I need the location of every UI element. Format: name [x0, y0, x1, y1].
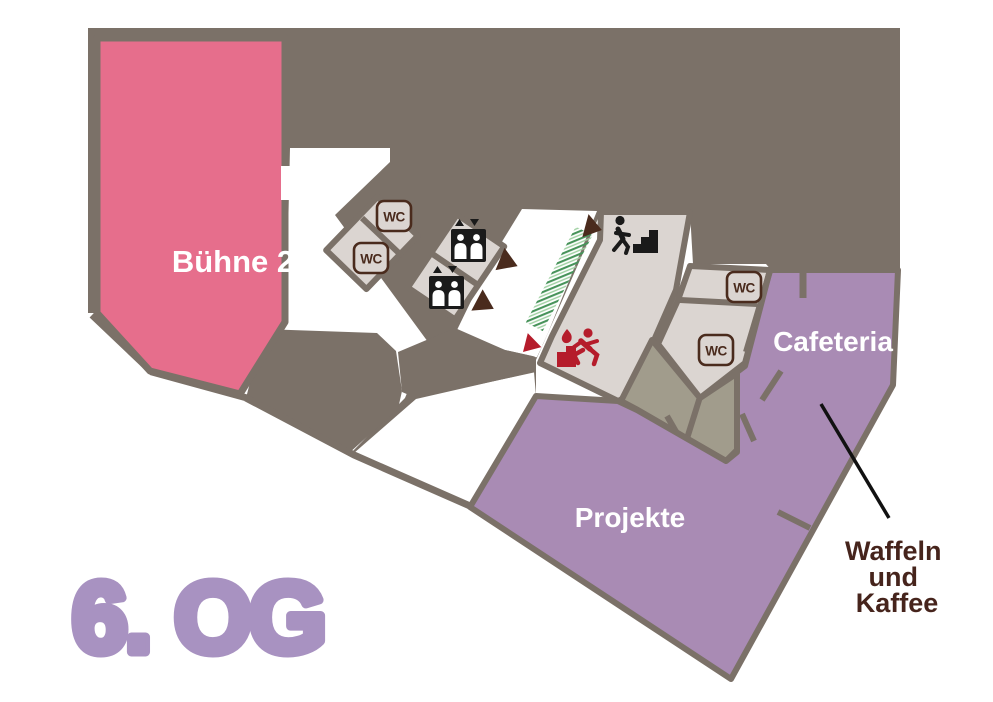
svg-text:WC: WC: [360, 252, 382, 267]
svg-text:WC: WC: [733, 281, 755, 296]
svg-text:WC: WC: [383, 210, 405, 225]
floor-label: 6. OG: [72, 562, 324, 674]
wc-icon: WC: [699, 335, 733, 365]
svg-text:WC: WC: [705, 344, 727, 359]
wc-icon: WC: [727, 272, 761, 302]
floor-plan-6og: Bühne 2 Projekte Cafeteria WC: [0, 0, 993, 702]
room-buehne2: [97, 38, 285, 394]
room-label-buehne2: Bühne 2: [172, 244, 294, 279]
annotation-text: Waffeln und Kaffee: [845, 536, 949, 618]
door-gap-buehne2: [281, 166, 292, 200]
wc-icon: WC: [354, 243, 388, 273]
wc-icon: WC: [377, 201, 411, 231]
room-label-projekte: Projekte: [575, 502, 686, 533]
room-label-cafeteria: Cafeteria: [773, 326, 893, 357]
